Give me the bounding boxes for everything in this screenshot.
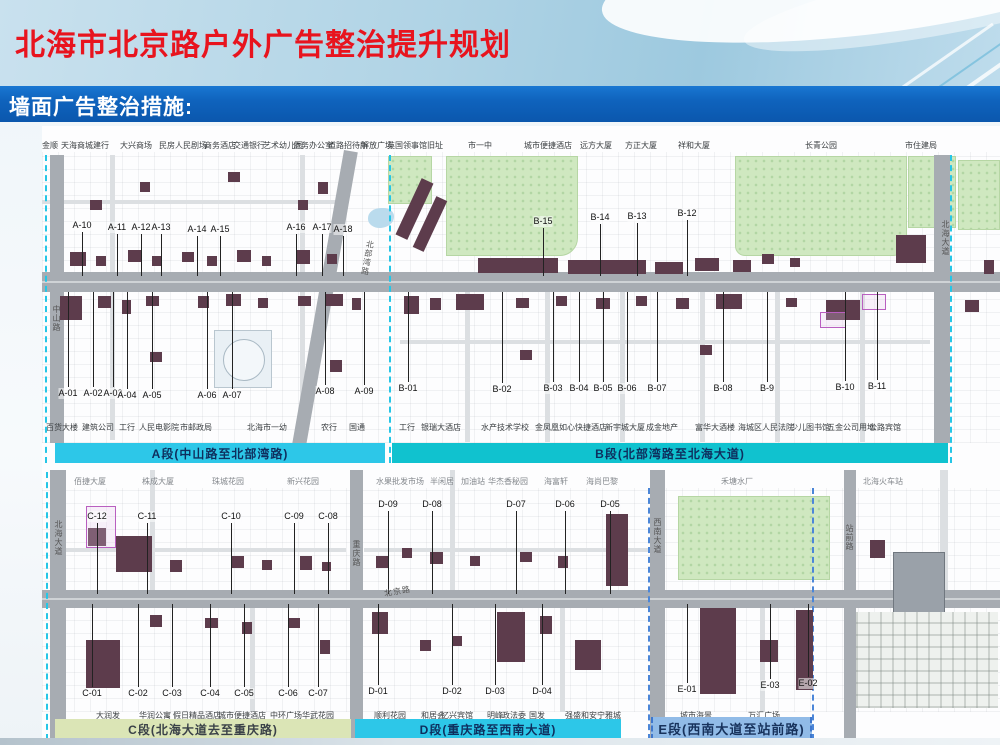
- marker-line: [378, 604, 379, 685]
- marker-line: [502, 292, 503, 383]
- marker-label: B-14: [590, 212, 609, 223]
- building-block: [558, 556, 568, 568]
- marker-line: [388, 511, 389, 594]
- marker-line: [210, 604, 211, 687]
- building-block: [288, 618, 300, 628]
- poi-label: 富华大酒楼: [695, 423, 735, 432]
- poi-label: 水产技术学校: [481, 423, 529, 432]
- marker-label: C-11: [138, 511, 157, 522]
- poi-label: 海富轩: [544, 477, 568, 486]
- marker-line: [553, 292, 554, 382]
- marker-line: [808, 604, 809, 677]
- building-block-outlined: [862, 294, 886, 310]
- road-name-label: 中山路: [51, 305, 62, 332]
- building-block: [470, 556, 480, 566]
- building-block: [568, 260, 646, 274]
- marker-label: C-03: [162, 688, 182, 699]
- poi-label: 长青公园: [805, 141, 837, 150]
- building-block: [520, 552, 532, 562]
- road-name-label: 北海大道: [53, 520, 64, 556]
- poi-label: 海尚巴黎: [586, 477, 618, 486]
- building-block: [298, 200, 308, 210]
- marker-line: [495, 604, 496, 685]
- marker-line: [141, 234, 142, 276]
- marker-label: A-17: [312, 222, 331, 233]
- building-block: [700, 608, 736, 694]
- poi-label: 公路宾馆: [869, 423, 901, 432]
- building-block: [228, 172, 240, 182]
- building-block: [322, 562, 331, 571]
- building-block: [420, 640, 431, 651]
- marker-label: A-05: [142, 390, 161, 401]
- marker-line: [68, 292, 69, 387]
- marker-label: B-10: [835, 382, 854, 393]
- marker-label: D-02: [442, 686, 462, 697]
- poi-label: 新宇城大厦: [605, 423, 645, 432]
- marker-line: [92, 604, 93, 687]
- marker-label: E-02: [798, 678, 817, 689]
- marker-label: B-01: [398, 383, 417, 394]
- marker-line: [687, 220, 688, 276]
- building-block: [478, 258, 558, 273]
- building-block: [262, 560, 272, 570]
- marker-line: [328, 523, 329, 594]
- road-name-label: 重庆路: [351, 540, 362, 567]
- building-block: [207, 256, 217, 266]
- marker-line: [138, 604, 139, 687]
- marker-line: [97, 523, 98, 594]
- marker-label: D-01: [368, 686, 388, 697]
- segment-banner-c: C段(北海大道去至重庆路): [55, 719, 351, 739]
- building-block: [152, 256, 161, 266]
- marker-line: [408, 292, 409, 382]
- marker-line: [610, 511, 611, 594]
- marker-label: B-9: [760, 383, 774, 394]
- building-block: [402, 548, 412, 558]
- marker-label: C-05: [234, 688, 254, 699]
- building-block: [733, 260, 751, 272]
- building-block: [232, 556, 244, 568]
- poi-label: 市邮政局: [180, 423, 212, 432]
- building-block: [762, 254, 774, 264]
- poi-label: 成金地产: [646, 423, 678, 432]
- marker-line: [565, 511, 566, 594]
- marker-label: B-02: [492, 384, 511, 395]
- building-block: [556, 296, 567, 306]
- building-block: [182, 252, 194, 262]
- marker-label: A-15: [210, 224, 229, 235]
- segment-banner-a: A段(中山路至北部湾路): [55, 443, 385, 463]
- marker-line: [770, 604, 771, 679]
- poi-label: 祥和大厦: [678, 141, 710, 150]
- building-block: [128, 250, 142, 262]
- marker-label: E-03: [760, 680, 779, 691]
- building-block: [430, 298, 441, 310]
- marker-line: [232, 292, 233, 389]
- marker-line: [325, 292, 326, 385]
- marker-line: [452, 604, 453, 685]
- building-block: [205, 618, 218, 628]
- marker-line: [152, 292, 153, 389]
- marker-line: [600, 224, 601, 276]
- building-block: [575, 640, 601, 670]
- poi-label: 人民电影院: [139, 423, 179, 432]
- building-block-outlined: [820, 312, 846, 328]
- poi-label: 方正大厦: [625, 141, 657, 150]
- building-block: [520, 350, 532, 360]
- marker-label: C-10: [221, 511, 241, 522]
- building-block: [965, 300, 979, 312]
- building-block: [298, 296, 311, 306]
- building-block: [376, 556, 388, 568]
- building-block: [636, 296, 647, 306]
- marker-line: [767, 292, 768, 382]
- marker-label: A-04: [117, 390, 136, 401]
- building-block: [140, 182, 150, 192]
- poi-label: 城市便捷酒店: [524, 141, 572, 150]
- building-block: [70, 252, 86, 266]
- poi-label: 远方大厦: [580, 141, 612, 150]
- poi-label: 华杰香秘园: [488, 477, 528, 486]
- marker-label: A-02: [83, 388, 102, 399]
- marker-line: [197, 236, 198, 276]
- building-block: [60, 296, 82, 320]
- slide: 北海市北京路户外广告整治提升规划 墙面广告整治措施:: [0, 0, 1000, 745]
- marker-line: [637, 223, 638, 276]
- marker-line: [244, 604, 245, 687]
- marker-label: D-07: [506, 499, 526, 510]
- building-block: [676, 298, 689, 309]
- marker-line: [627, 292, 628, 382]
- marker-label: B-13: [627, 211, 646, 222]
- building-block: [300, 556, 312, 570]
- building-block: [870, 540, 885, 558]
- building-block: [790, 258, 800, 267]
- marker-label: B-05: [593, 383, 612, 394]
- poi-label: 水果批发市场: [376, 477, 424, 486]
- road-name-label: 站前路: [844, 524, 855, 551]
- building-block: [516, 298, 529, 308]
- poi-label: 交通银行: [233, 141, 265, 150]
- building-block: [170, 560, 182, 572]
- poi-label: 如心快捷酒店: [559, 423, 607, 432]
- marker-label: C-12: [87, 511, 107, 522]
- marker-label: A-09: [354, 386, 373, 397]
- poi-label: 海城区人民法院: [738, 423, 794, 432]
- marker-label: D-05: [600, 499, 620, 510]
- marker-line: [322, 234, 323, 276]
- marker-label: D-04: [532, 686, 552, 697]
- poi-label: 佰捷大厦: [74, 477, 106, 486]
- poi-label: 工行: [399, 423, 415, 432]
- marker-line: [579, 292, 580, 382]
- poi-label: 禾塘水厂: [721, 477, 753, 486]
- poi-label: 侨务办公室: [293, 141, 333, 150]
- marker-label: A-16: [286, 222, 305, 233]
- poi-label: 株成大厦: [142, 477, 174, 486]
- marker-line: [603, 292, 604, 382]
- marker-line: [687, 604, 688, 683]
- building-block: [452, 636, 462, 646]
- marker-line: [220, 236, 221, 276]
- building-block: [456, 294, 484, 310]
- marker-label: A-11: [108, 222, 126, 233]
- marker-line: [516, 511, 517, 594]
- building-block: [327, 254, 337, 264]
- marker-label: B-12: [677, 208, 696, 219]
- building-block: [655, 262, 683, 274]
- marker-label: C-09: [284, 511, 304, 522]
- marker-line: [845, 292, 846, 381]
- poi-label: 北海市一幼: [247, 423, 287, 432]
- poi-label: 少儿图书馆: [790, 423, 830, 432]
- building-block: [984, 260, 994, 274]
- poi-label: 百货大楼: [46, 423, 78, 432]
- segment-banner-e: E段(西南大道至站前路): [651, 717, 812, 740]
- building-block: [700, 345, 712, 355]
- marker-line: [432, 511, 433, 594]
- marker-line: [231, 523, 232, 594]
- poi-label: 天海商城: [61, 141, 93, 150]
- marker-line: [288, 604, 289, 687]
- road-name-label: 西南大道: [652, 518, 663, 554]
- building-block: [330, 360, 342, 372]
- segment-banner-b: B段(北部湾路至北海大道): [392, 443, 948, 463]
- marker-line: [723, 292, 724, 382]
- segment-banner-d: D段(重庆路至西南大道): [355, 719, 621, 739]
- marker-label: B-04: [569, 383, 588, 394]
- building-block: [320, 640, 330, 654]
- marker-label: B-08: [713, 383, 732, 394]
- marker-label: C-07: [308, 688, 328, 699]
- building-block: [716, 294, 742, 309]
- poi-label: 新兴花园: [287, 477, 319, 486]
- building-block: [326, 294, 343, 306]
- marker-line: [207, 292, 208, 389]
- poi-label: 农行: [321, 423, 337, 432]
- marker-line: [147, 523, 148, 594]
- building-block: [896, 235, 926, 263]
- poi-label: 英国领事馆旧址: [387, 141, 443, 150]
- building-block: [150, 615, 162, 627]
- marker-label: B-11: [868, 381, 886, 392]
- marker-label: E-01: [677, 684, 696, 695]
- marker-label: A-01: [58, 388, 77, 399]
- marker-line: [657, 292, 658, 382]
- marker-label: C-04: [200, 688, 220, 699]
- marker-label: C-01: [82, 688, 102, 699]
- building-block: [258, 298, 268, 308]
- marker-label: D-09: [378, 499, 398, 510]
- marker-line: [161, 234, 162, 276]
- marker-label: A-10: [72, 220, 91, 231]
- poi-label: 北海火车站: [863, 477, 903, 486]
- marker-label: A-14: [187, 224, 206, 235]
- marker-line: [82, 232, 83, 276]
- building-block: [226, 294, 241, 306]
- poi-label: 民房: [159, 141, 175, 150]
- building-block: [96, 256, 106, 266]
- road-name-label: 北海大道: [940, 220, 951, 256]
- building-block: [760, 640, 778, 662]
- poi-label: 建筑公司: [82, 423, 114, 432]
- marker-label: A-12: [131, 222, 150, 233]
- marker-line: [117, 234, 118, 276]
- building-block: [318, 182, 328, 194]
- marker-label: D-03: [485, 686, 505, 697]
- road-name-label: 北部湾路: [359, 239, 376, 276]
- marker-line: [877, 292, 878, 380]
- building-block: [372, 612, 388, 634]
- marker-label: C-08: [318, 511, 338, 522]
- marker-line: [113, 292, 114, 387]
- poi-label: 五金公司用地: [827, 423, 875, 432]
- marker-line: [296, 234, 297, 276]
- marker-line: [127, 292, 128, 389]
- poi-label: 工行: [119, 423, 135, 432]
- poi-label: 大兴商场: [120, 141, 152, 150]
- building-block: [237, 250, 251, 262]
- marker-label: B-07: [647, 383, 666, 394]
- poi-label: 国通: [349, 423, 365, 432]
- building-block: [296, 250, 310, 264]
- poi-label: 珠城花园: [212, 477, 244, 486]
- poi-label: 市住建局: [905, 141, 937, 150]
- marker-label: A-08: [315, 386, 334, 397]
- marker-line: [318, 604, 319, 687]
- marker-label: D-06: [555, 499, 575, 510]
- poi-label: 半闲居: [430, 477, 454, 486]
- marker-line: [93, 292, 94, 387]
- building-block: [786, 298, 797, 307]
- marker-label: A-18: [333, 224, 352, 235]
- building-block: [262, 256, 271, 266]
- building-block: [352, 298, 361, 310]
- marker-label: A-06: [197, 390, 216, 401]
- poi-label: 商务酒店: [204, 141, 236, 150]
- marker-line: [542, 604, 543, 685]
- marker-label: C-06: [278, 688, 298, 699]
- bottom-edge-decoration: [0, 738, 1000, 745]
- building-block: [98, 296, 111, 308]
- marker-label: C-02: [128, 688, 148, 699]
- marker-label: B-15: [533, 216, 552, 227]
- marker-label: A-07: [222, 390, 241, 401]
- marker-line: [364, 292, 365, 385]
- marker-line: [343, 236, 344, 276]
- poi-label: 人民剧场: [175, 141, 207, 150]
- poi-label: 加油站: [461, 477, 485, 486]
- building-block: [695, 258, 719, 271]
- poi-label: 金凤凰: [535, 423, 559, 432]
- building-block: [404, 296, 419, 314]
- poi-label: 市一中: [468, 141, 492, 150]
- poi-label: 银瑞大酒店: [421, 423, 461, 432]
- poi-label: 建行: [93, 141, 109, 150]
- marker-line: [172, 604, 173, 687]
- map-annotation-layer: 金顺天海商城建行大兴商场民房人民剧场商务酒店交通银行艺术幼儿园侨务办公室道路招待…: [0, 0, 1000, 745]
- marker-label: B-06: [617, 383, 636, 394]
- marker-line: [294, 523, 295, 594]
- marker-label: A-13: [151, 222, 170, 233]
- building-block: [497, 612, 525, 662]
- marker-label: B-03: [543, 383, 562, 394]
- marker-label: D-08: [422, 499, 442, 510]
- marker-line: [543, 228, 544, 276]
- poi-label: 金顺: [42, 141, 58, 150]
- building-block: [90, 200, 102, 210]
